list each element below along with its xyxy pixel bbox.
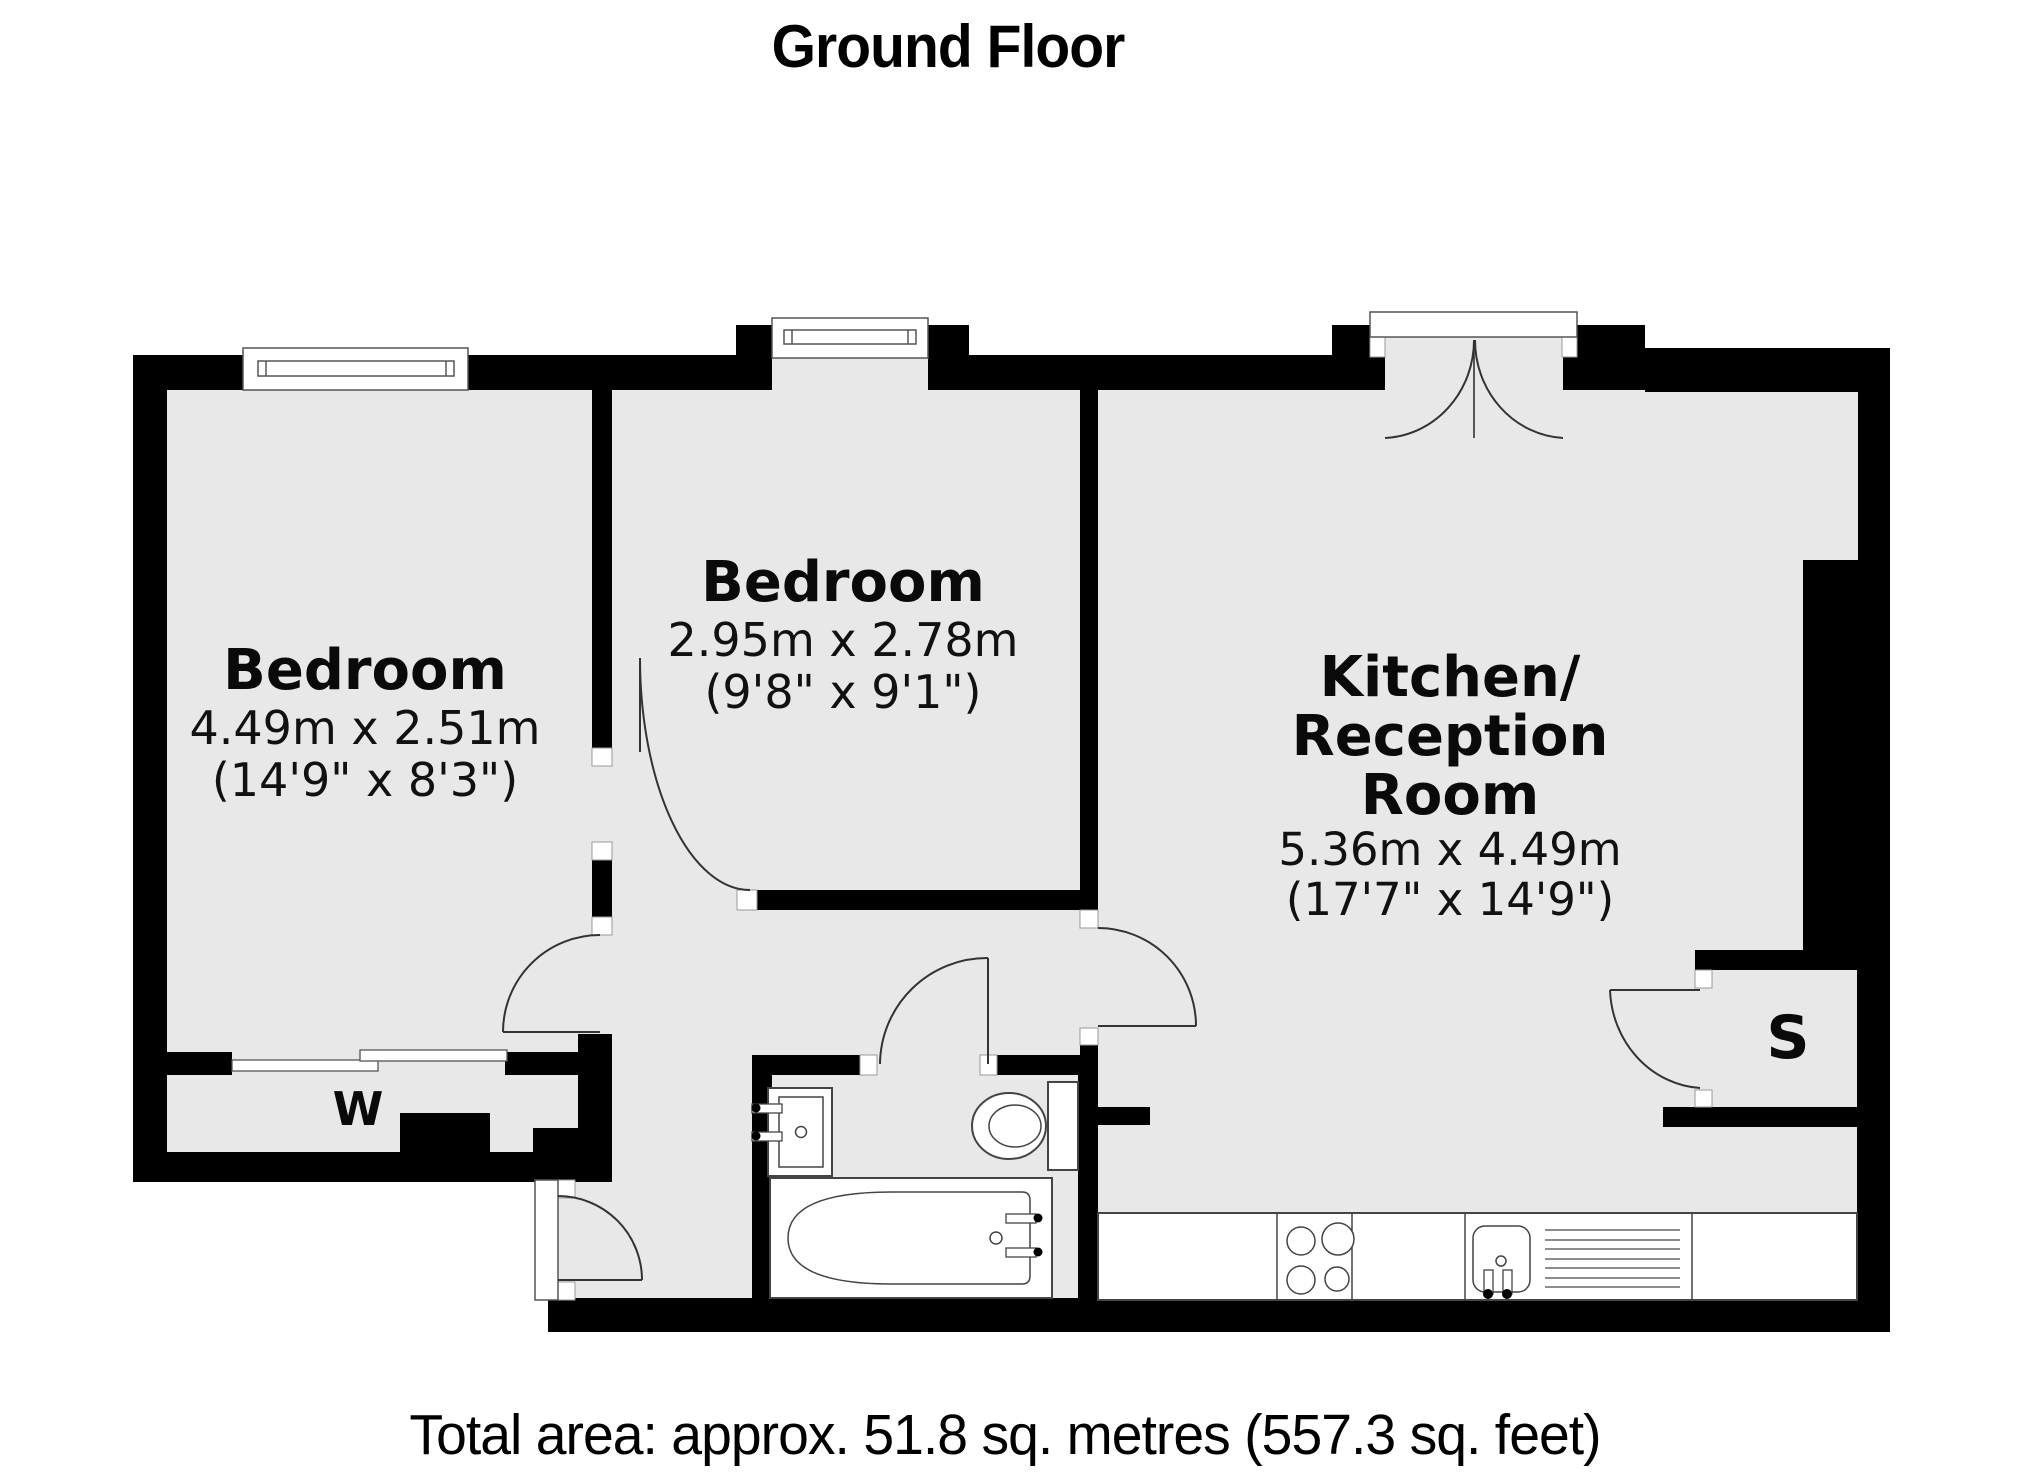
wall-right-lower bbox=[1857, 950, 1890, 1332]
kitchen-sink bbox=[1473, 1226, 1530, 1299]
bedroom2-dims-imperial: (9'8" x 9'1") bbox=[668, 666, 1019, 718]
jamb bbox=[592, 748, 612, 766]
jamb bbox=[737, 890, 757, 910]
wardrobe-inner-block bbox=[400, 1113, 490, 1152]
jamb bbox=[592, 842, 612, 860]
wall-right-upper bbox=[1858, 382, 1890, 562]
kitchen-name-line3: Room bbox=[1278, 766, 1621, 825]
jamb bbox=[1080, 1028, 1098, 1045]
bedroom2-dims-metric: 2.95m x 2.78m bbox=[668, 614, 1019, 666]
bedroom1-window bbox=[243, 348, 468, 390]
wall-bottom-left bbox=[133, 1152, 608, 1182]
bathtub bbox=[770, 1178, 1052, 1298]
wall-bathroom-top-right bbox=[997, 1055, 1098, 1075]
wall-bathroom-top-left bbox=[752, 1055, 860, 1075]
kitchen-counter bbox=[1098, 1213, 1857, 1300]
wall-storage-top bbox=[1695, 950, 1857, 970]
kitchen-dims-metric: 5.36m x 4.49m bbox=[1278, 825, 1621, 875]
wall-storage-bottom bbox=[1663, 1107, 1857, 1127]
kitchen-label: Kitchen/ Reception Room 5.36m x 4.49m (1… bbox=[1278, 648, 1621, 925]
frenchdoor-lintel bbox=[1370, 312, 1577, 337]
jamb bbox=[1695, 970, 1712, 988]
kitchen-dims-imperial: (17'7" x 14'9") bbox=[1278, 875, 1621, 925]
jamb bbox=[1370, 337, 1385, 357]
wall-bottom-right bbox=[548, 1298, 1890, 1332]
bedroom2-label: Bedroom 2.95m x 2.78m (9'8" x 9'1") bbox=[668, 552, 1019, 718]
wall-kitchen-west-upper bbox=[1080, 390, 1098, 910]
jamb bbox=[592, 917, 612, 935]
wall-partition-bedrooms bbox=[592, 390, 612, 750]
bedroom1-dims-imperial: (14'9" x 8'3") bbox=[190, 754, 541, 806]
bedroom1-dims-metric: 4.49m x 2.51m bbox=[190, 702, 541, 754]
storage-letter: S bbox=[1766, 1003, 1809, 1073]
wall-left bbox=[133, 355, 167, 1182]
bedroom2-window-bay bbox=[772, 356, 928, 396]
wall-bump-left bbox=[736, 325, 772, 390]
outside-area bbox=[125, 1182, 548, 1342]
jamb bbox=[860, 1055, 877, 1075]
wall-right-notch bbox=[1803, 560, 1890, 952]
floorplan-page: Ground Floor bbox=[0, 0, 2025, 1473]
bedroom2-name: Bedroom bbox=[668, 552, 1019, 614]
wall-bedroom2-bottom bbox=[757, 890, 1080, 910]
wall-partition-seg2 bbox=[592, 860, 612, 917]
jamb bbox=[558, 1282, 575, 1300]
wardrobe-letter: W bbox=[333, 1082, 384, 1136]
wall-top-right bbox=[1645, 348, 1890, 392]
wall-bump-right bbox=[928, 325, 969, 390]
kitchen-name-line1: Kitchen/ bbox=[1278, 648, 1621, 707]
wall-wardrobe-left bbox=[167, 1052, 232, 1075]
bedroom1-label: Bedroom 4.49m x 2.51m (14'9" x 8'3") bbox=[190, 640, 541, 806]
bedroom1-name: Bedroom bbox=[190, 640, 541, 702]
wall-kitchen-stub bbox=[1098, 1107, 1150, 1125]
wall-wardrobe-right bbox=[505, 1052, 592, 1075]
bedroom2-window bbox=[772, 318, 928, 358]
jamb bbox=[1080, 910, 1098, 928]
jamb bbox=[1562, 337, 1577, 357]
total-area-caption: Total area: approx. 51.8 sq. metres (557… bbox=[409, 1402, 1600, 1468]
wardrobe-inner-step bbox=[533, 1128, 578, 1152]
kitchen-name-line2: Reception bbox=[1278, 707, 1621, 766]
wall-top-mid bbox=[969, 355, 1332, 390]
jamb bbox=[1695, 1090, 1712, 1107]
wall-bathroom-right bbox=[1078, 1075, 1098, 1298]
